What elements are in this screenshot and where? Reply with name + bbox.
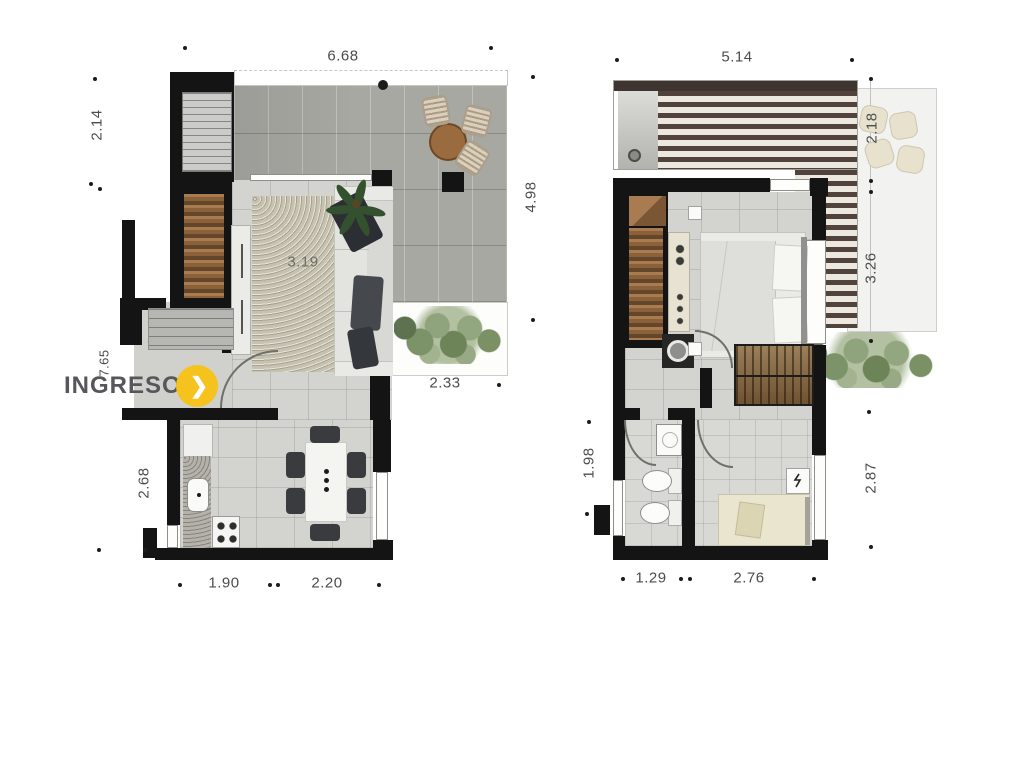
- outdoor-pouf: [888, 110, 919, 141]
- dim-label: 1.98: [581, 447, 598, 478]
- nightstand: [688, 206, 702, 220]
- window: [814, 455, 826, 540]
- dim-tick: [621, 577, 625, 581]
- dim-label: 3.26: [863, 252, 880, 283]
- outdoor-pouf: [895, 144, 926, 175]
- dim-label: 2.18: [864, 112, 881, 143]
- shelf-column: [668, 232, 690, 332]
- headboard: [805, 497, 810, 545]
- wall: [594, 505, 610, 535]
- pergola-roof: [613, 80, 858, 170]
- dim-tick: [867, 410, 871, 414]
- sliding-door: [806, 240, 826, 344]
- dim-tick: [869, 545, 873, 549]
- dim-tick: [869, 339, 873, 343]
- dim-tick: [869, 77, 873, 81]
- wall: [613, 546, 828, 560]
- dim-tick: [615, 58, 619, 62]
- dim-tick: [869, 179, 873, 183]
- washbasin: [656, 424, 682, 456]
- wall: [810, 178, 828, 196]
- wall: [700, 368, 712, 408]
- wall: [812, 540, 828, 560]
- window: [613, 480, 623, 536]
- dim-label: 1.29: [635, 570, 666, 587]
- wall: [668, 408, 682, 420]
- toilet: [642, 470, 672, 492]
- wall: [613, 192, 625, 480]
- wall: [682, 408, 695, 548]
- pergola-beam: [614, 81, 857, 91]
- wall: [613, 178, 770, 192]
- bidet: [640, 502, 670, 524]
- bed-pillow: [735, 501, 765, 538]
- floor-plan-sheet: INGRESO ❯ 6.68 2.14 4.98 7.65 3.19 2.33 …: [0, 0, 1024, 768]
- wardrobe: [734, 344, 814, 406]
- bidet-tank: [668, 500, 682, 526]
- wall: [812, 196, 826, 240]
- nightstand: [786, 468, 810, 494]
- staircase: [629, 228, 663, 340]
- dim-tick: [688, 577, 692, 581]
- dim-tick: [585, 512, 589, 516]
- dim-tick: [679, 577, 683, 581]
- wall: [613, 408, 640, 420]
- single-bed: [718, 494, 810, 546]
- drain-circle: [628, 149, 641, 162]
- dim-tick: [812, 577, 816, 581]
- dim-label: 2.87: [863, 462, 880, 493]
- dim-tick: [850, 58, 854, 62]
- pergola-slats: [658, 91, 857, 169]
- dim-label: 5.14: [721, 49, 752, 66]
- stair-landing: [629, 196, 666, 226]
- dim-tick: [869, 190, 873, 194]
- lamp-icon: [790, 473, 806, 489]
- window: [770, 179, 810, 191]
- dim-label: 2.76: [733, 570, 764, 587]
- right-plan: 5.14 2.18 3.26 1.98 2.87 1.29 2.76: [0, 0, 1024, 768]
- wall: [812, 345, 826, 455]
- headboard: [801, 237, 807, 355]
- dim-tick: [587, 420, 591, 424]
